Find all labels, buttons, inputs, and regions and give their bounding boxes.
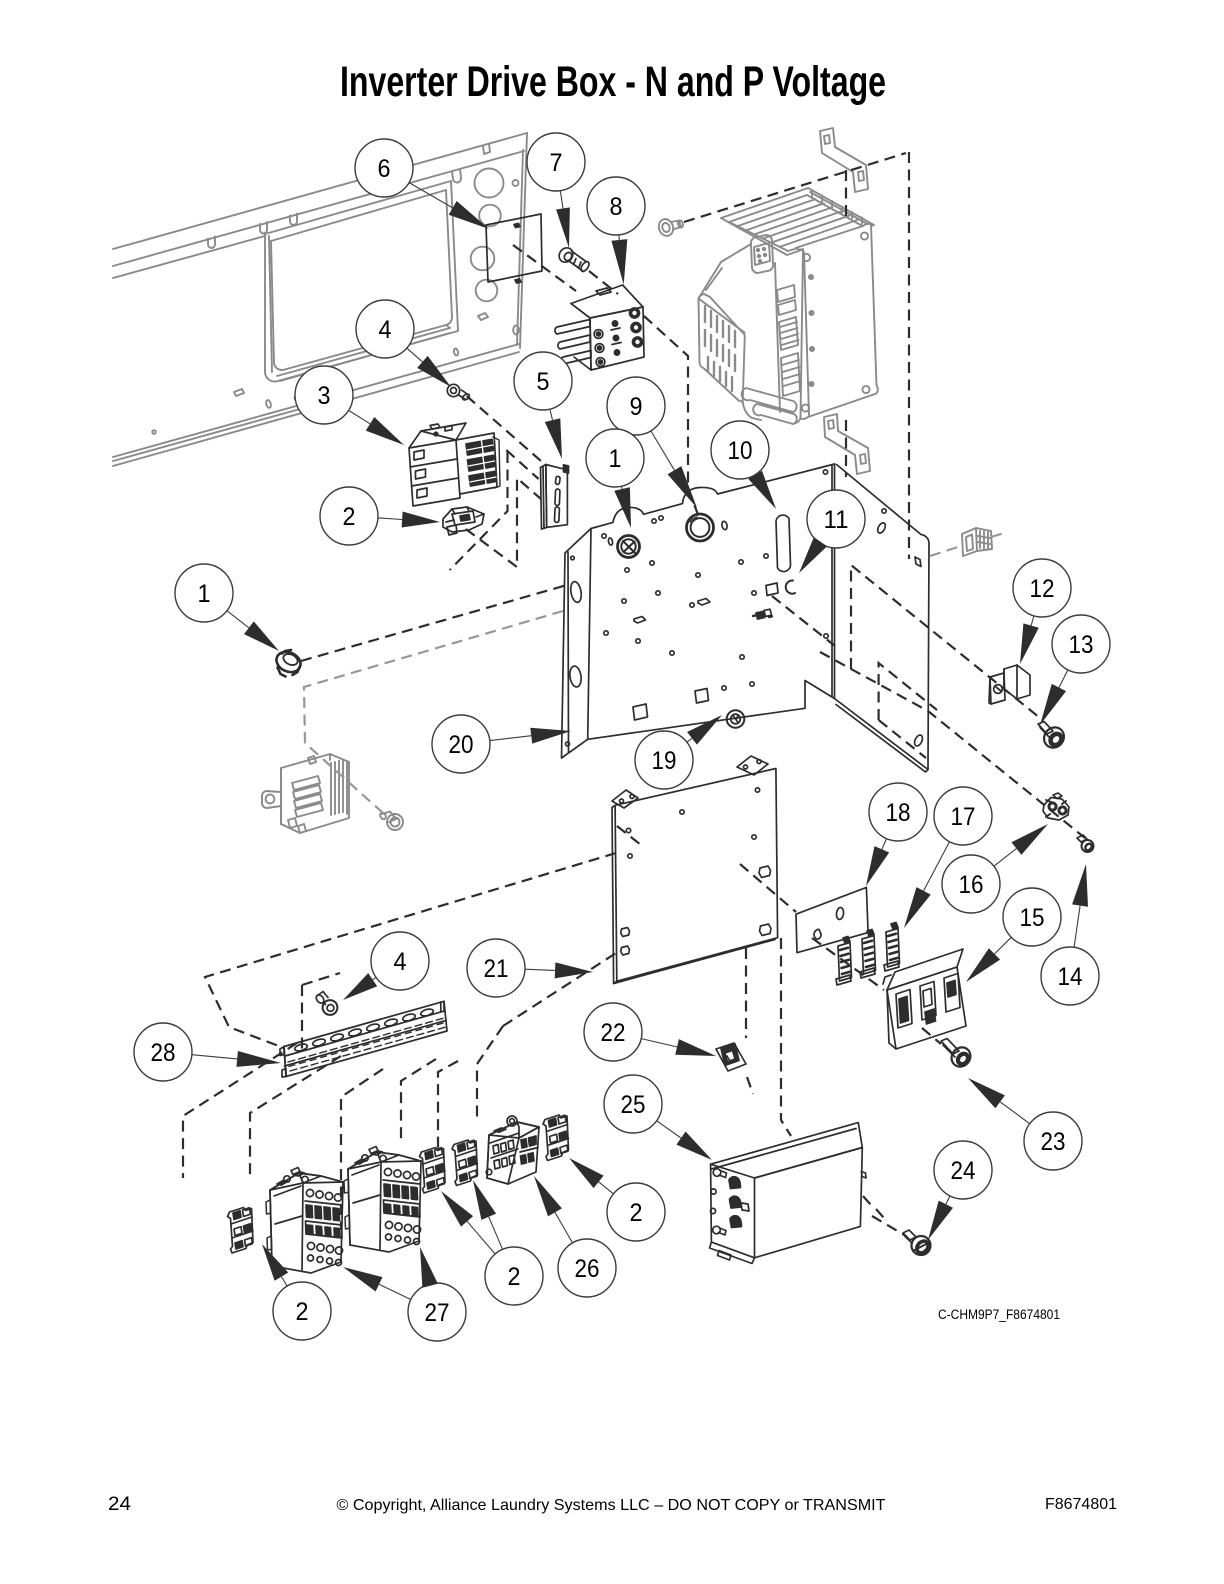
- svg-text:8: 8: [610, 193, 623, 221]
- svg-text:26: 26: [575, 1255, 600, 1283]
- svg-text:16: 16: [959, 871, 984, 899]
- svg-text:7: 7: [550, 149, 563, 177]
- svg-text:15: 15: [1020, 904, 1045, 932]
- svg-text:4: 4: [379, 316, 392, 344]
- svg-text:11: 11: [824, 506, 849, 534]
- svg-text:28: 28: [151, 1039, 176, 1067]
- svg-text:9: 9: [630, 393, 643, 421]
- svg-text:19: 19: [652, 747, 677, 775]
- svg-text:21: 21: [484, 955, 509, 983]
- svg-text:3: 3: [318, 382, 331, 410]
- svg-text:17: 17: [951, 803, 976, 831]
- svg-text:27: 27: [425, 1299, 450, 1327]
- svg-text:20: 20: [449, 731, 474, 759]
- svg-text:25: 25: [621, 1091, 646, 1119]
- svg-text:2: 2: [343, 503, 356, 531]
- svg-text:22: 22: [601, 1019, 626, 1047]
- svg-text:2: 2: [508, 1263, 521, 1291]
- svg-text:F8674801: F8674801: [1045, 1496, 1117, 1513]
- svg-text:12: 12: [1030, 575, 1055, 603]
- svg-text:1: 1: [198, 580, 211, 608]
- svg-text:C-CHM9P7_F8674801: C-CHM9P7_F8674801: [938, 1307, 1060, 1322]
- svg-text:23: 23: [1041, 1128, 1066, 1156]
- svg-text:1: 1: [609, 445, 622, 473]
- svg-text:24: 24: [951, 1157, 976, 1185]
- svg-text:2: 2: [630, 1199, 643, 1227]
- svg-text:13: 13: [1069, 631, 1094, 659]
- svg-text:18: 18: [886, 799, 911, 827]
- svg-text:6: 6: [378, 155, 391, 183]
- svg-text:10: 10: [728, 437, 753, 465]
- svg-text:14: 14: [1058, 963, 1083, 991]
- svg-text:4: 4: [394, 948, 407, 976]
- svg-text:24: 24: [108, 1494, 131, 1515]
- svg-text:2: 2: [296, 1298, 309, 1326]
- svg-text:© Copyright, Alliance Laundry: © Copyright, Alliance Laundry Systems LL…: [337, 1497, 886, 1514]
- svg-text:Inverter Drive Box - N and P V: Inverter Drive Box - N and P Voltage: [340, 58, 886, 106]
- svg-text:5: 5: [537, 368, 550, 396]
